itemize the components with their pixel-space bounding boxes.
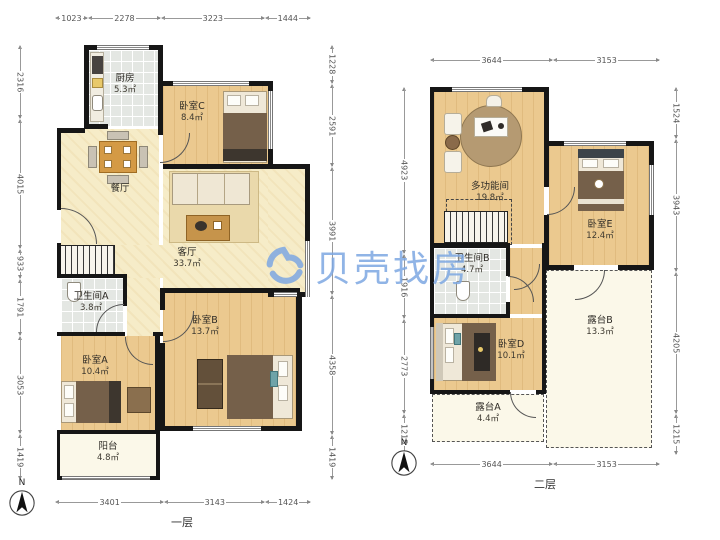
dim-segment: 3153 bbox=[553, 54, 660, 66]
wall bbox=[57, 243, 61, 278]
chair-icon bbox=[486, 95, 502, 107]
dim-segment: 1424 bbox=[265, 496, 311, 508]
bed-foot-icon bbox=[223, 149, 267, 161]
desk-lamp-icon bbox=[498, 123, 504, 129]
label-terrace-a: 露台A4.4㎡ bbox=[456, 402, 520, 425]
window bbox=[274, 292, 297, 297]
dim-segment: 3401 bbox=[55, 496, 164, 508]
window bbox=[173, 81, 249, 86]
cushion-icon bbox=[270, 371, 278, 387]
dim-segment: 1023 bbox=[55, 12, 88, 24]
dim-segment: 1791 bbox=[14, 279, 26, 337]
window bbox=[564, 141, 626, 146]
wall bbox=[618, 265, 654, 270]
wall bbox=[57, 332, 125, 336]
dim-segment: 4923 bbox=[398, 87, 410, 254]
toilet-icon bbox=[456, 281, 470, 301]
floor2-caption: 二层 bbox=[505, 476, 585, 492]
wall bbox=[430, 87, 434, 251]
window bbox=[268, 91, 273, 149]
dresser-icon bbox=[127, 387, 151, 413]
wall bbox=[430, 390, 510, 394]
dim-segment: 3223 bbox=[161, 12, 265, 24]
dim-segment: 1524 bbox=[670, 87, 682, 139]
floorplan-second-floor: 多功能间19.8㎡ 卧室E12.4㎡ 卫生间B4.7㎡ 卧室D10.1㎡ 露台B… bbox=[430, 87, 660, 455]
dims-floor2-right: 1524 3943 4205 1215 bbox=[670, 87, 682, 455]
blanket-icon bbox=[76, 381, 109, 423]
chair-icon bbox=[88, 146, 97, 168]
blanket-icon bbox=[227, 355, 273, 419]
window bbox=[430, 327, 434, 379]
dim-segment: 3991 bbox=[326, 167, 338, 295]
dims-floor2-bottom: 3644 3153 bbox=[430, 458, 660, 470]
wall bbox=[57, 430, 159, 434]
wall bbox=[544, 87, 549, 146]
plate-icon bbox=[104, 146, 112, 154]
floor1-caption: 一层 bbox=[142, 514, 222, 530]
pillow-icon bbox=[278, 361, 288, 377]
room-terrace-b bbox=[546, 270, 652, 448]
wall bbox=[160, 288, 165, 310]
dim-segment: 933 bbox=[14, 249, 26, 279]
window bbox=[452, 87, 522, 92]
wall bbox=[506, 248, 510, 276]
side-table-icon bbox=[445, 135, 460, 150]
stairs-icon bbox=[444, 211, 508, 243]
label-terrace-b: 露台B13.3㎡ bbox=[566, 315, 634, 338]
pillow-icon bbox=[64, 385, 74, 399]
compass-north-floor2: N bbox=[390, 438, 418, 477]
label-balcony: 阳台4.8㎡ bbox=[75, 441, 141, 464]
bed-foot-icon bbox=[578, 204, 624, 211]
dims-floor1-top: 1023 2278 3223 1444 bbox=[55, 12, 311, 24]
pillow-icon bbox=[245, 95, 259, 106]
stairs-icon bbox=[59, 245, 115, 275]
blanket-icon bbox=[223, 113, 267, 149]
dim-segment: 3153 bbox=[553, 458, 660, 470]
dims-floor1-left: 2316 4015 933 1791 3053 1419 bbox=[14, 45, 26, 480]
wardrobe-icon bbox=[197, 359, 223, 409]
dim-segment: 3644 bbox=[430, 54, 553, 66]
wall bbox=[430, 314, 510, 318]
label-bath-b: 卫生间B4.7㎡ bbox=[438, 253, 506, 276]
armchair-icon bbox=[444, 151, 462, 173]
wall bbox=[156, 434, 160, 480]
wall bbox=[84, 45, 89, 129]
label-living: 客厅33.7㎡ bbox=[157, 247, 217, 270]
room-living-bay bbox=[268, 169, 306, 293]
compass-icon bbox=[8, 489, 36, 517]
headboard-icon bbox=[436, 323, 443, 381]
label-multifunction: 多功能间19.8㎡ bbox=[452, 181, 528, 204]
wall bbox=[57, 434, 60, 480]
sink-icon bbox=[92, 95, 103, 111]
dims-floor2-top: 3644 3153 bbox=[430, 54, 660, 66]
dim-segment: 2316 bbox=[14, 45, 26, 119]
wall bbox=[544, 265, 574, 270]
dim-segment: 2278 bbox=[88, 12, 161, 24]
dim-segment: 1444 bbox=[265, 12, 311, 24]
floorplan-page: 1023 2278 3223 1444 2316 4015 933 1791 3… bbox=[0, 0, 720, 540]
wall bbox=[536, 390, 546, 394]
plate-icon bbox=[104, 160, 112, 168]
headboard-icon bbox=[578, 149, 624, 158]
dim-segment: 2773 bbox=[398, 319, 410, 413]
label-bedroom-e: 卧室E12.4㎡ bbox=[564, 219, 636, 242]
window bbox=[649, 165, 654, 215]
plate-icon bbox=[123, 160, 131, 168]
wall bbox=[160, 343, 165, 431]
dim-segment: 1419 bbox=[326, 435, 338, 480]
label-bedroom-a: 卧室A10.4㎡ bbox=[63, 355, 127, 378]
wall bbox=[84, 124, 108, 129]
label-bedroom-d: 卧室D10.1㎡ bbox=[476, 339, 546, 362]
wall bbox=[163, 164, 310, 169]
wall bbox=[649, 141, 654, 165]
pillow-icon bbox=[603, 159, 619, 168]
compass-north-floor1: N bbox=[8, 478, 36, 517]
compass-n-label: N bbox=[19, 478, 26, 488]
dim-segment: 3143 bbox=[164, 496, 265, 508]
pillow-icon bbox=[582, 159, 598, 168]
dim-segment: 2591 bbox=[326, 84, 338, 167]
wall bbox=[649, 215, 654, 270]
cushion-icon bbox=[454, 333, 461, 345]
pillow-icon bbox=[445, 328, 454, 344]
label-bedroom-b: 卧室B13.7㎡ bbox=[173, 315, 237, 338]
bed-decor-icon bbox=[594, 179, 604, 189]
dim-segment: 4205 bbox=[670, 272, 682, 414]
wall bbox=[123, 274, 127, 306]
wall bbox=[57, 274, 127, 278]
table-decor-icon bbox=[195, 221, 207, 231]
label-kitchen: 厨房5.3㎡ bbox=[95, 73, 155, 96]
wall bbox=[296, 297, 302, 430]
dim-segment: 4358 bbox=[326, 295, 338, 435]
pillow-icon bbox=[445, 347, 454, 363]
plate-icon bbox=[123, 146, 131, 154]
dim-segment: 4015 bbox=[14, 119, 26, 248]
chair-icon bbox=[107, 131, 129, 140]
window bbox=[97, 45, 149, 50]
sofa-icon bbox=[172, 173, 250, 205]
dim-segment: 1215 bbox=[670, 414, 682, 455]
dim-segment: 1228 bbox=[326, 45, 338, 84]
wall bbox=[57, 128, 61, 210]
dim-segment: 3053 bbox=[14, 336, 26, 434]
dim-segment: 1916 bbox=[398, 254, 410, 319]
dim-segment: 3644 bbox=[430, 458, 553, 470]
label-bath-a: 卫生间A3.8㎡ bbox=[61, 291, 121, 314]
compass-n-label: N bbox=[401, 438, 408, 448]
label-bedroom-c: 卧室C8.4㎡ bbox=[157, 101, 227, 124]
floorplan-first-floor: 厨房5.3㎡ 卧室C8.4㎡ 餐厅 客厅33.7㎡ 卫生间A3.8㎡ 卧室A10… bbox=[57, 45, 310, 480]
stove-icon bbox=[92, 56, 103, 74]
dims-floor1-bottom: 3401 3143 1424 bbox=[55, 496, 311, 508]
wall bbox=[544, 146, 549, 187]
dims-floor2-left: 4923 1916 2773 1215 bbox=[398, 87, 410, 455]
hallway bbox=[127, 278, 160, 336]
wall bbox=[542, 248, 546, 394]
wall bbox=[57, 128, 85, 133]
window bbox=[193, 426, 261, 431]
compass-icon bbox=[390, 449, 418, 477]
armchair-icon bbox=[444, 113, 462, 135]
table-decor-icon bbox=[213, 221, 222, 230]
window bbox=[62, 476, 150, 480]
window bbox=[305, 241, 310, 297]
coffee-table-icon bbox=[186, 215, 230, 241]
wall bbox=[430, 243, 510, 248]
dim-segment: 3943 bbox=[670, 139, 682, 272]
dims-floor1-right: 1228 2591 3991 4358 1419 bbox=[326, 45, 338, 480]
pillow-icon bbox=[227, 95, 241, 106]
pillow-icon bbox=[64, 403, 74, 417]
pillow-icon bbox=[278, 385, 288, 401]
dim-segment: 1419 bbox=[14, 434, 26, 480]
chair-icon bbox=[139, 146, 148, 168]
label-dining: 餐厅 bbox=[95, 183, 145, 195]
bed-foot-icon bbox=[109, 381, 121, 423]
